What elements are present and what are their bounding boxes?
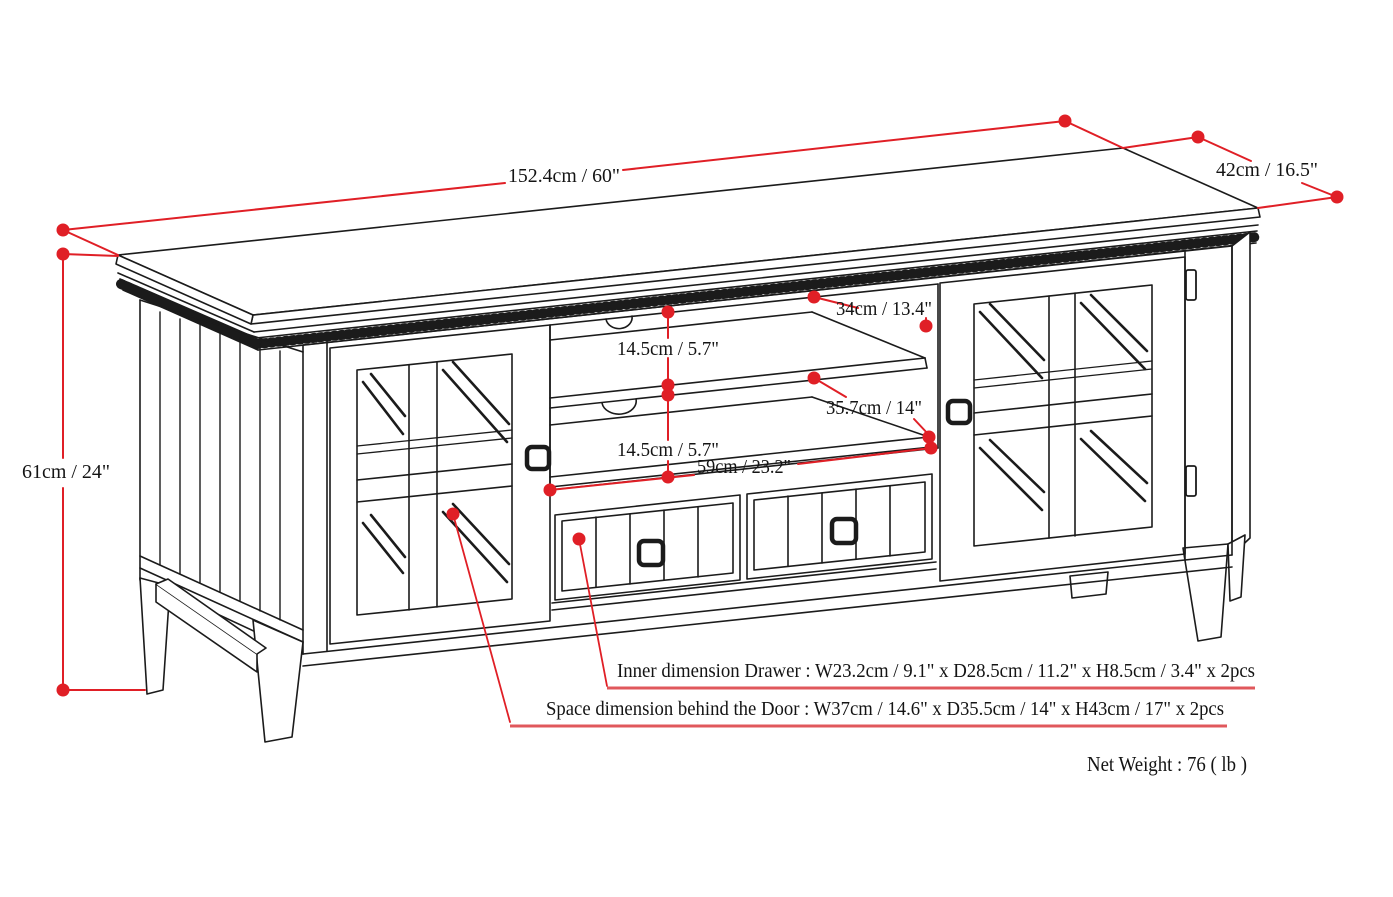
note-door-dimension: Space dimension behind the Door : W37cm …: [546, 698, 1224, 720]
drawer-left-knob: [639, 541, 663, 565]
point-gap2-bottom: [662, 471, 675, 484]
point-height-bottom: [57, 684, 70, 697]
point-mid-shelf-back: [808, 372, 821, 385]
side-stretcher: [156, 579, 266, 672]
dim-label-upper-shelf-gap: 14.5cm / 5.7": [617, 338, 719, 360]
point-drawer-leader: [573, 533, 586, 546]
hinge-top: [1186, 270, 1196, 300]
point-depth-back: [1192, 131, 1205, 144]
point-mid-shelf-front: [923, 431, 936, 444]
dimension-diagram-page: 152.4cm / 60" 42cm / 16.5" 61cm / 24" 34…: [0, 0, 1393, 897]
dim-label-middle-shelf-depth: 35.7cm / 14": [826, 397, 922, 419]
leader-door-note: [453, 514, 510, 722]
point-door-leader: [447, 508, 460, 521]
point-top-shelf-front: [920, 320, 933, 333]
note-drawer-dimension: Inner dimension Drawer : W23.2cm / 9.1" …: [617, 660, 1255, 682]
dim-label-overall-width: 152.4cm / 60": [508, 165, 620, 187]
right-side-panel: [1232, 232, 1250, 555]
note-net-weight: Net Weight : 76 ( lb ): [1087, 752, 1247, 776]
right-door-interior-shelf-line: [974, 361, 1152, 388]
dim-label-top-shelf-depth: 34cm / 13.4": [836, 298, 932, 320]
point-width-left: [57, 224, 70, 237]
point-depth-front: [1331, 191, 1344, 204]
point-height-top: [57, 248, 70, 261]
leader-drawer-note: [579, 539, 607, 686]
tv-stand-dimension-diagram: 152.4cm / 60" 42cm / 16.5" 61cm / 24" 34…: [0, 0, 1393, 897]
point-center-width-left: [544, 484, 557, 497]
dim-label-overall-height: 61cm / 24": [22, 461, 110, 483]
center-support-glide: [1070, 572, 1108, 598]
dim-label-center-opening-width: 59cm / 23.2": [697, 456, 791, 478]
notes: Inner dimension Drawer : W23.2cm / 9.1" …: [546, 660, 1255, 776]
left-door: [330, 325, 550, 644]
left-door-handle: [527, 447, 549, 469]
point-gap2-top: [662, 389, 675, 402]
point-center-width-right: [925, 442, 938, 455]
right-door: [940, 257, 1185, 581]
drawer-left: [555, 495, 740, 600]
drawer-right-knob: [832, 519, 856, 543]
left-door-interior-shelf-line: [357, 430, 512, 454]
leg-back-right: [1228, 535, 1245, 601]
right-door-glass-reflections: [980, 295, 1147, 510]
hinges: [1186, 270, 1196, 496]
drawer-right: [747, 474, 932, 579]
leg-front-left: [253, 620, 303, 742]
right-door-handle: [948, 401, 970, 423]
dim-label-overall-depth: 42cm / 16.5": [1216, 159, 1318, 181]
drawers: [555, 474, 932, 600]
point-gap1-top: [662, 306, 675, 319]
point-top-shelf-back: [808, 291, 821, 304]
hinge-bottom: [1186, 466, 1196, 496]
point-width-right: [1059, 115, 1072, 128]
